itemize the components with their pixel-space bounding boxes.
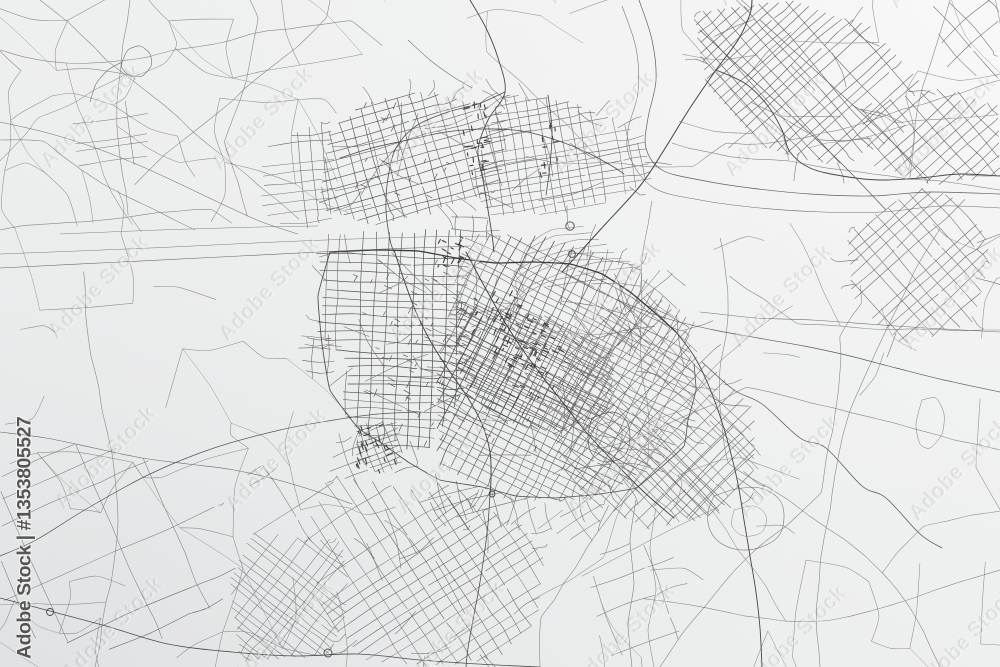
svg-text:Adobe Stock | #1353805527: Adobe Stock | #1353805527 [14,417,36,659]
